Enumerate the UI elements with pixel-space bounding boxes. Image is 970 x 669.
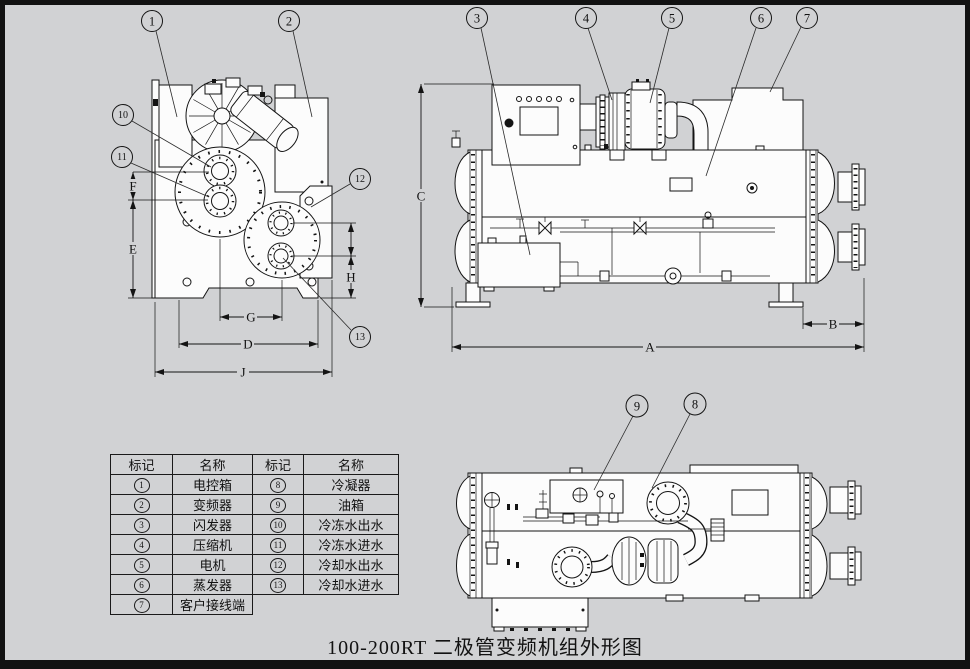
legend-mark-cell: 7 <box>111 595 173 615</box>
drawing-sheet: F E H G D J 1 2 <box>0 0 970 669</box>
legend-empty-cell <box>253 595 304 615</box>
svg-text:6: 6 <box>758 12 764 26</box>
callout-8: 8 <box>684 393 706 415</box>
legend-row: 3 闪发器 10 冷冻水出水 <box>111 515 399 535</box>
callout-12: 12 <box>350 169 371 190</box>
circled-number: 4 <box>134 538 150 553</box>
svg-text:1: 1 <box>149 15 155 29</box>
legend-mark-cell: 12 <box>253 555 304 575</box>
legend-row: 5 电机 12 冷却水出水 <box>111 555 399 575</box>
legend-mark-cell: 1 <box>111 475 173 495</box>
dimension-label-j: J <box>240 365 245 380</box>
purge-unit-part <box>492 598 588 631</box>
svg-text:7: 7 <box>804 12 810 26</box>
legend-mark-cell: 13 <box>253 575 304 595</box>
flash-tank-part <box>478 236 560 291</box>
callout-2: 2 <box>279 11 300 32</box>
circled-number: 6 <box>134 578 150 593</box>
callout-7: 7 <box>797 8 818 29</box>
callout-10: 10 <box>113 105 134 126</box>
callout-6: 6 <box>751 8 772 29</box>
dimension-label-a: A <box>645 340 655 355</box>
end-view: F E H G D J 1 2 <box>112 11 371 380</box>
svg-text:12: 12 <box>355 174 365 185</box>
legend-header-row: 标记 名称 标记 名称 <box>111 455 399 475</box>
legend-mark-cell: 10 <box>253 515 304 535</box>
legend-mark-cell: 11 <box>253 535 304 555</box>
legend-name-cell: 油箱 <box>304 495 399 515</box>
dimension-label-h: H <box>346 270 355 285</box>
circled-number: 9 <box>270 498 286 513</box>
legend-mark-cell: 9 <box>253 495 304 515</box>
legend-mark-cell: 8 <box>253 475 304 495</box>
callout-13: 13 <box>350 327 371 348</box>
plan-view: 9 8 <box>457 393 862 631</box>
circled-number: 1 <box>134 478 150 493</box>
control-panel-part <box>492 85 580 165</box>
drawing-caption: 100-200RT 二极管变频机组外形图 <box>0 631 970 660</box>
side-view: C A B 3 4 5 6 7 <box>415 8 865 355</box>
legend-name-cell: 冷凝器 <box>304 475 399 495</box>
callout-5: 5 <box>662 8 683 29</box>
plan-vessel-part <box>457 468 828 601</box>
circled-number: 3 <box>134 518 150 533</box>
legend-row: 4 压缩机 11 冷冻水进水 <box>111 535 399 555</box>
circled-number: 12 <box>270 558 286 573</box>
dimension-label-f: F <box>129 179 136 194</box>
plan-water-nozzles-part <box>830 481 861 585</box>
svg-text:2: 2 <box>286 15 292 29</box>
legend-mark-cell: 4 <box>111 535 173 555</box>
circled-number: 5 <box>134 558 150 573</box>
legend-name-cell: 电机 <box>173 555 253 575</box>
svg-text:13: 13 <box>355 332 365 343</box>
condenser-end-flange-part <box>244 202 320 278</box>
legend-row: 2 变频器 9 油箱 <box>111 495 399 515</box>
circled-number: 7 <box>134 598 150 613</box>
legend-name-cell: 冷却水进水 <box>304 575 399 595</box>
legend-row: 7 客户接线端 <box>111 595 399 615</box>
circled-number: 13 <box>270 578 286 593</box>
dimension-label-d: D <box>243 337 252 352</box>
svg-text:11: 11 <box>117 152 127 163</box>
legend-mark-cell: 5 <box>111 555 173 575</box>
legend-name-cell: 冷却水出水 <box>304 555 399 575</box>
legend-table: 标记 名称 标记 名称 1 电控箱 8 冷凝器 2 变频器 9 油箱 3 闪发器… <box>110 454 399 615</box>
legend-name-cell: 闪发器 <box>173 515 253 535</box>
callout-1: 1 <box>142 11 163 32</box>
legend-mark-cell: 6 <box>111 575 173 595</box>
dimension-label-c: C <box>417 189 426 204</box>
legend-name-cell: 蒸发器 <box>173 575 253 595</box>
dimension-label-e: E <box>129 242 137 257</box>
legend-header-mark: 标记 <box>111 455 173 475</box>
circled-number: 10 <box>270 518 286 533</box>
svg-text:8: 8 <box>692 398 698 412</box>
callout-11: 11 <box>112 147 133 168</box>
water-nozzles-part <box>838 164 865 270</box>
callout-3: 3 <box>467 8 488 29</box>
circled-number: 11 <box>270 538 286 553</box>
circled-number: 8 <box>270 478 286 493</box>
legend-header-mark: 标记 <box>253 455 304 475</box>
callout-4: 4 <box>576 8 597 29</box>
dimension-label-g: G <box>246 310 255 325</box>
svg-text:5: 5 <box>669 12 675 26</box>
callout-9: 9 <box>626 395 648 417</box>
legend-row: 1 电控箱 8 冷凝器 <box>111 475 399 495</box>
dimension-label-b: B <box>829 317 838 332</box>
legend-name-cell: 压缩机 <box>173 535 253 555</box>
legend-header-name: 名称 <box>304 455 399 475</box>
legend-name-cell: 电控箱 <box>173 475 253 495</box>
legend-name-cell: 冷冻水进水 <box>304 535 399 555</box>
svg-text:4: 4 <box>583 12 590 26</box>
legend-name-cell: 冷冻水出水 <box>304 515 399 535</box>
legend-mark-cell: 2 <box>111 495 173 515</box>
svg-text:9: 9 <box>634 400 640 414</box>
circled-number: 2 <box>134 498 150 513</box>
legend-mark-cell: 3 <box>111 515 173 535</box>
legend-empty-cell <box>304 595 399 615</box>
legend-name-cell: 变频器 <box>173 495 253 515</box>
control-box-latch <box>153 99 158 106</box>
svg-text:10: 10 <box>118 110 128 121</box>
legend-row: 6 蒸发器 13 冷却水进水 <box>111 575 399 595</box>
legend-name-cell: 客户接线端 <box>173 595 253 615</box>
svg-text:3: 3 <box>474 12 480 26</box>
customer-terminal-part <box>693 88 803 152</box>
legend-header-name: 名称 <box>173 455 253 475</box>
